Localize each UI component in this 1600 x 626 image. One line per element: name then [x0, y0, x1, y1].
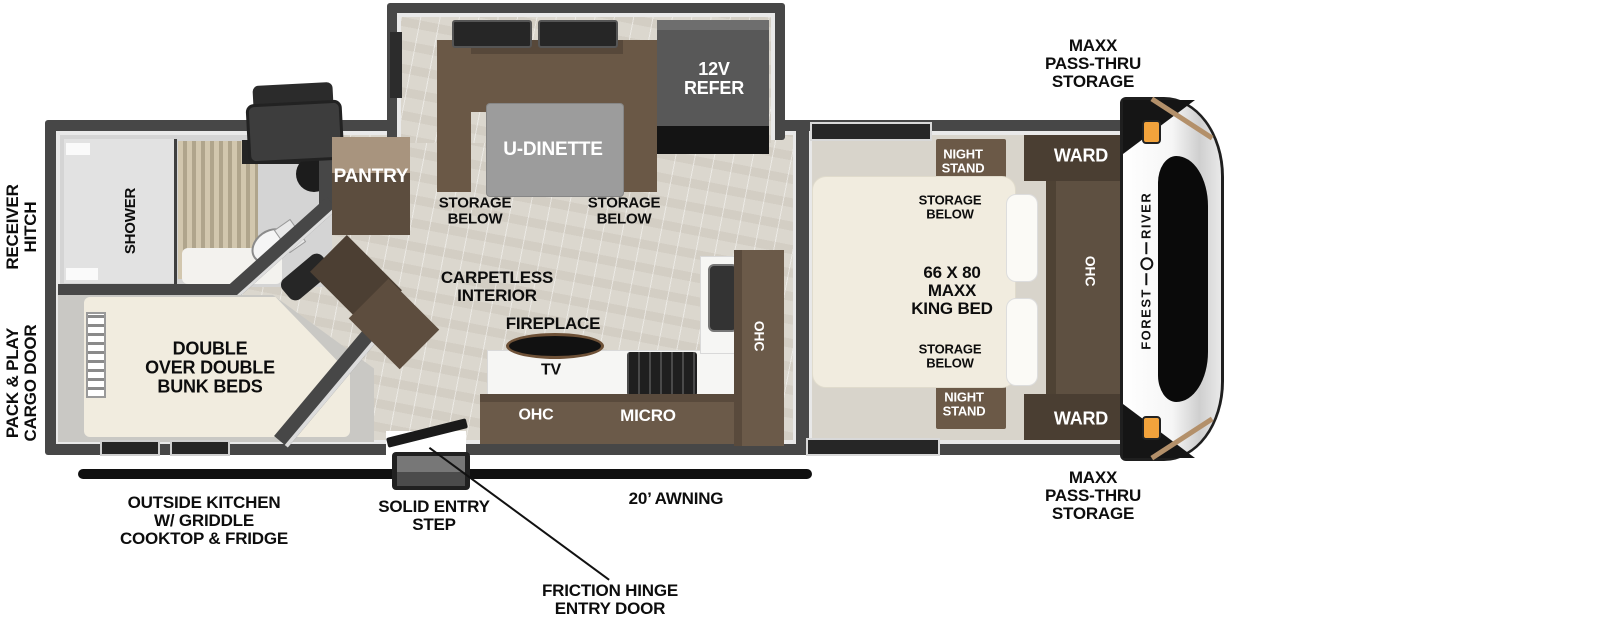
tv-label: TV — [541, 363, 561, 380]
awning-label: 20’ AWNING — [629, 490, 724, 508]
brand-separator-left — [1146, 273, 1148, 285]
pillow-bottom — [1006, 298, 1038, 386]
bed-storage-bottom-label: STORAGE BELOW — [919, 342, 982, 369]
shower-divider — [174, 139, 177, 285]
refrigerator-label: 12V REFER — [684, 60, 744, 98]
shower-fixture-top — [66, 143, 90, 155]
wardrobe-top-label: WARD — [1054, 147, 1108, 166]
slideout-window — [390, 32, 402, 98]
bedroom-window-top — [810, 122, 932, 141]
kitchen-ohc-label: OHC — [519, 408, 554, 425]
receiver-hitch-label: RECEIVER HITCH — [4, 184, 40, 269]
kitchen-side-ohc-label: OHC — [752, 321, 767, 352]
kitchen-side-band-edge — [734, 250, 742, 446]
wardrobe-bottom-label: WARD — [1054, 410, 1108, 429]
bunk-ladder — [86, 312, 106, 398]
dinette-table-label: U-DINETTE — [503, 140, 603, 160]
cap-marker-light-bottom — [1142, 416, 1161, 440]
shower-label: SHOWER — [123, 188, 139, 254]
shower-stall — [64, 139, 176, 283]
dinette-storage-right-label: STORAGE BELOW — [588, 195, 661, 227]
pass-thru-storage-bottom-label: MAXX PASS-THRU STORAGE — [1045, 469, 1141, 523]
dinette-bench-right-arm — [623, 40, 657, 192]
brand-word-forest: FOREST — [1138, 288, 1153, 350]
dinette-bench-left-arm — [437, 40, 471, 192]
microwave-label: MICRO — [620, 407, 676, 425]
fireplace-label: FIREPLACE — [506, 315, 601, 333]
bunk-window-left — [100, 440, 160, 456]
slideout-window-right — [538, 20, 618, 48]
carpetless-label: CARPETLESS INTERIOR — [441, 269, 553, 305]
entry-step-tread-bottom — [397, 472, 465, 486]
bed-storage-top-label: STORAGE BELOW — [919, 193, 982, 220]
bedroom-partition-wall — [796, 131, 809, 444]
chair-seat — [245, 100, 344, 165]
king-bed-label: 66 X 80 MAXX KING BED — [911, 264, 993, 318]
night-stand-bottom-label: NIGHT STAND — [943, 390, 986, 417]
night-stand-top-label: NIGHT STAND — [942, 147, 985, 174]
bunk-window-right — [170, 440, 230, 456]
brand-word-river: RIVER — [1138, 192, 1153, 239]
entry-door-label: FRICTION HINGE ENTRY DOOR — [542, 582, 678, 618]
pass-thru-storage-top-label: MAXX PASS-THRU STORAGE — [1045, 37, 1141, 91]
bunk-beds-label: DOUBLE OVER DOUBLE BUNK BEDS — [145, 340, 275, 397]
pillow-top — [1006, 194, 1038, 282]
fireplace-unit — [506, 333, 604, 359]
shower-fixture-bottom — [66, 268, 98, 280]
brand-mark: FORESTRIVER — [1125, 192, 1166, 370]
forest-river-tree-logo-icon — [1140, 257, 1153, 270]
dinette-storage-left-label: STORAGE BELOW — [439, 195, 512, 227]
entry-step-tread-top — [397, 456, 465, 472]
refrigerator-front — [657, 126, 769, 154]
cooktop — [627, 352, 697, 396]
bedroom-window-bottom — [806, 438, 940, 456]
kitchen-ohc-band-edge — [480, 394, 748, 402]
outside-kitchen-label: OUTSIDE KITCHEN W/ GRIDDLE COOKTOP & FRI… — [120, 494, 288, 548]
bedroom-ohc-label: OHC — [1083, 256, 1098, 287]
entry-step-label: SOLID ENTRY STEP — [378, 498, 489, 534]
kitchen-counter — [487, 350, 751, 398]
slideout-window-left — [452, 20, 532, 48]
cargo-door-label: PACK & PLAY CARGO DOOR — [4, 324, 40, 441]
refrigerator-highlight — [657, 20, 769, 30]
floorplan-canvas: U-DINETTE 12V REFER STORAGE BELOW STORAG… — [0, 0, 1600, 626]
brand-separator-right — [1146, 242, 1148, 254]
pantry-label: PANTRY — [334, 167, 409, 187]
cap-marker-light-top — [1142, 120, 1161, 144]
